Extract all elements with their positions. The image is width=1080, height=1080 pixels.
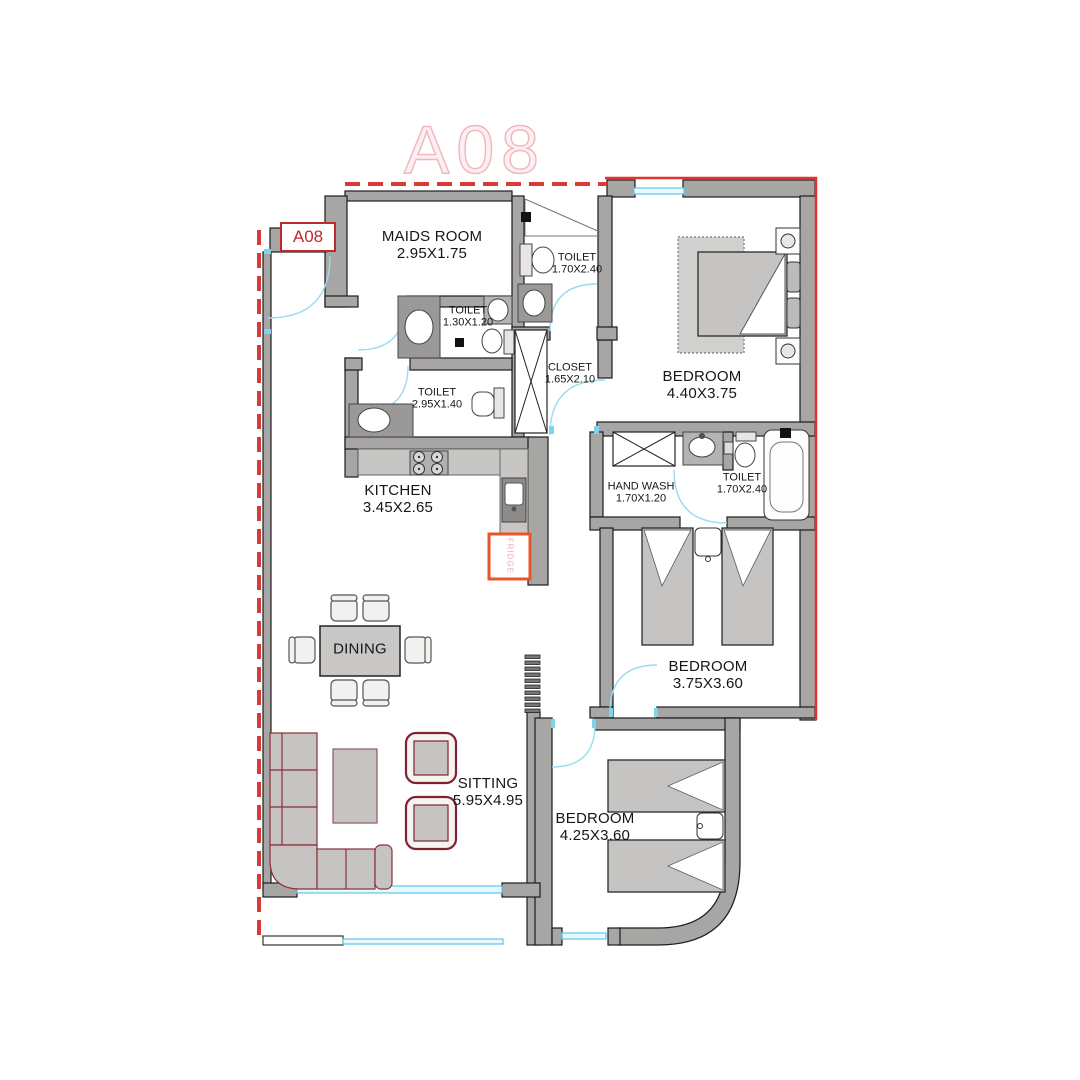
room-dims: 3.45X2.65 [363, 500, 433, 517]
window-master-bedroom [634, 188, 684, 194]
folding-partition [525, 655, 540, 713]
room-label-dining: DINING [333, 642, 387, 659]
room-label-toilet-top: TOILET 1.70X2.40 [552, 252, 602, 277]
room-name: TOILET [443, 305, 493, 317]
pillow [787, 262, 800, 292]
room-name: KITCHEN [363, 483, 433, 500]
room-label-kitchen: KITCHEN 3.45X2.65 [363, 483, 433, 517]
unit-watermark: A08 [404, 111, 546, 189]
nightstand [697, 813, 723, 839]
nightstand [776, 338, 800, 364]
door-bedroom-middle [610, 665, 657, 712]
room-dims: 1.70X2.40 [552, 264, 602, 276]
room-label-sitting: SITTING 5.95X4.95 [453, 776, 523, 810]
nightstand [776, 228, 800, 254]
floor-drain [455, 338, 464, 347]
room-label-toilet-mid: TOILET 2.95X1.40 [412, 387, 462, 412]
room-label-hand-wash: HAND WASH 1.70X1.20 [608, 481, 675, 506]
sitting-furniture [270, 733, 456, 889]
nightstand [695, 528, 721, 562]
armchair [406, 797, 456, 849]
room-label-bedroom-master: BEDROOM 4.40X3.75 [663, 369, 742, 403]
window-balcony [343, 939, 503, 944]
window-bottom-bedroom [562, 933, 606, 939]
room-dims: 1.30X1.20 [443, 317, 493, 329]
room-name: TOILET [717, 472, 767, 484]
room-name: MAIDS ROOM [382, 229, 482, 246]
room-name: TOILET [412, 387, 462, 399]
pillow [787, 298, 800, 328]
stove [410, 451, 448, 475]
closet-shaft [515, 330, 547, 433]
room-dims: 2.95X1.75 [382, 246, 482, 263]
door-entrance [268, 256, 330, 318]
master-bedroom-furniture [678, 228, 800, 364]
room-dims: 4.25X3.60 [556, 828, 635, 845]
floorplan-canvas: A08 A08 FRIDGE MAIDS ROOM 2.95X1.75 TOIL… [0, 0, 1080, 1080]
door-bedroom-bottom [552, 724, 595, 767]
room-label-bedroom-bottom: BEDROOM 4.25X3.60 [556, 811, 635, 845]
unit-tag-badge: A08 [280, 222, 336, 252]
room-label-closet: CLOSET 1.65X2.10 [545, 362, 595, 387]
shower-handle [521, 212, 531, 222]
room-dims: 1.65X2.10 [545, 374, 595, 386]
balcony-parapet [263, 936, 343, 945]
room-name: TOILET [552, 252, 602, 264]
room-name: SITTING [453, 776, 523, 793]
room-name: BEDROOM [556, 811, 635, 828]
room-name: CLOSET [545, 362, 595, 374]
room-label-toilet-small: TOILET 1.30X1.20 [443, 305, 493, 330]
room-dims: 1.70X2.40 [717, 484, 767, 496]
room-label-toilet-bedroom: TOILET 1.70X2.40 [717, 472, 767, 497]
room-dims: 3.75X3.60 [669, 676, 748, 693]
room-name: BEDROOM [663, 369, 742, 386]
armchair [406, 733, 456, 783]
room-name: BEDROOM [669, 659, 748, 676]
room-name: HAND WASH [608, 481, 675, 493]
room-label-maids-room: MAIDS ROOM 2.95X1.75 [382, 229, 482, 263]
kitchen-sink [502, 478, 526, 522]
room-dims: 2.95X1.40 [412, 399, 462, 411]
room-dims: 5.95X4.95 [453, 793, 523, 810]
room-name: DINING [333, 642, 387, 659]
fridge-label: FRIDGE [506, 538, 515, 574]
door-toilet-top [550, 284, 597, 331]
room-dims: 1.70X1.20 [608, 493, 675, 505]
handwash-shaft [613, 432, 675, 466]
middle-bedroom-furniture [642, 528, 773, 645]
room-dims: 4.40X3.75 [663, 386, 742, 403]
coffee-table [333, 749, 377, 823]
room-label-bedroom-middle: BEDROOM 3.75X3.60 [669, 659, 748, 693]
bathtub [764, 428, 809, 520]
